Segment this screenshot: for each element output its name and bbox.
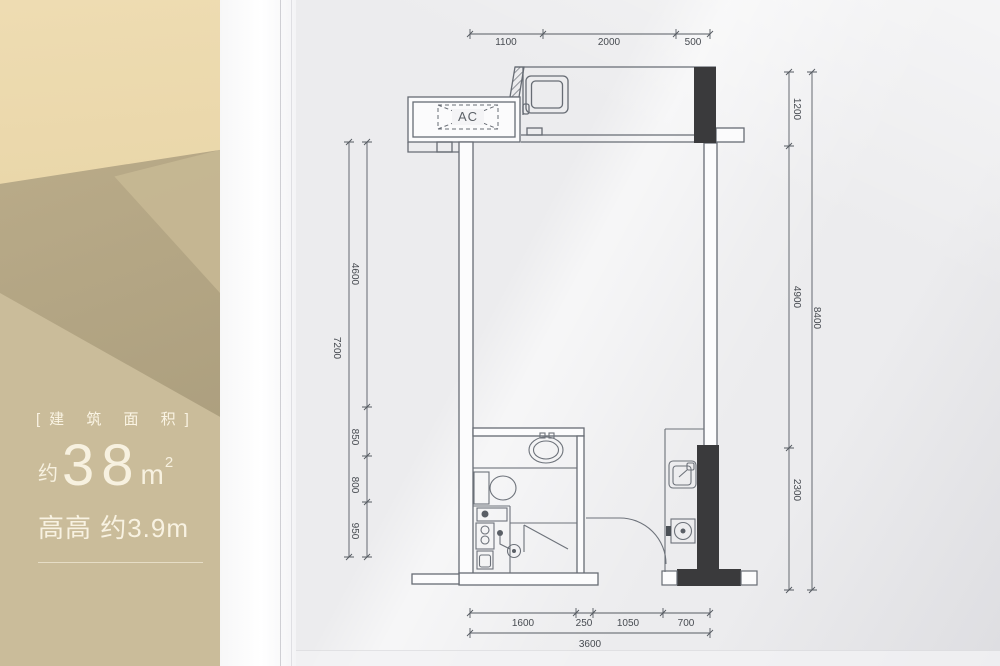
- stove-burner-1: [481, 526, 489, 534]
- dim-top-1: 1100: [495, 37, 517, 48]
- column-top-right: [694, 67, 716, 143]
- hob-center: [681, 529, 686, 534]
- right-wall: [704, 143, 717, 448]
- bottom-wall: [459, 573, 598, 585]
- kitchen-faucet-spout: [679, 470, 687, 477]
- left-wall: [459, 142, 473, 584]
- dim-left-3: 800: [349, 477, 360, 494]
- shower-door-diagonal: [524, 525, 568, 549]
- bottom-wall-stub: [412, 574, 459, 584]
- toilet-bowl: [490, 476, 516, 500]
- bottom-wall-cap-right: [741, 571, 757, 585]
- dim-left-4: 950: [349, 523, 360, 540]
- shower-valve: [497, 530, 503, 536]
- shower-head-center: [512, 549, 516, 553]
- dim-bottom-4: 700: [678, 618, 695, 629]
- under-sink-inner: [480, 555, 491, 567]
- dim-left-1: 4600: [349, 263, 360, 286]
- dim-bottom-3: 1050: [617, 618, 640, 629]
- floorplan-drawing: AC: [0, 0, 1000, 666]
- bottom-wall-cap-left: [662, 571, 677, 585]
- hatched-wall-section: [510, 67, 524, 97]
- dim-right-3: 2300: [791, 479, 802, 502]
- dim-bottom-1: 1600: [512, 618, 535, 629]
- column-bottom-right: [697, 445, 719, 572]
- dim-right-1: 1200: [791, 98, 802, 121]
- dim-right-2: 4900: [791, 286, 802, 309]
- dim-top-3: 500: [685, 37, 702, 48]
- door-swing-arc: [620, 518, 666, 564]
- kitchen-sink-inner: [673, 466, 691, 485]
- sill-notch: [527, 128, 542, 135]
- toilet-tank: [474, 472, 489, 504]
- cabinet-knob: [482, 511, 489, 518]
- wall-stub-right: [716, 128, 744, 142]
- bathroom-top-wall: [473, 428, 584, 436]
- ac-pedestal-leg: [437, 142, 452, 152]
- fixtures-group: [473, 429, 704, 573]
- dim-left-total: 7200: [331, 337, 342, 360]
- floorplan-page: { "left_panel": { "area_title": "[建 筑 面 …: [0, 0, 1000, 666]
- cabinet-box: [477, 508, 507, 521]
- dim-right-total: 8400: [811, 307, 822, 330]
- basin-inner: [534, 441, 559, 459]
- dim-top-2: 2000: [598, 37, 621, 48]
- window-frame-inner: [532, 81, 563, 108]
- walls-group: [408, 67, 744, 585]
- bathroom-right-wall: [577, 436, 584, 584]
- bottom-black-wall: [677, 569, 741, 586]
- stove-burner-2: [481, 536, 489, 544]
- dim-bottom-total: 3600: [579, 639, 602, 650]
- dim-left-2: 850: [349, 429, 360, 446]
- dim-bottom-2: 250: [576, 618, 593, 629]
- vanity-counter: [473, 436, 577, 468]
- ac-label: AC: [458, 109, 478, 124]
- hob-control: [666, 526, 671, 536]
